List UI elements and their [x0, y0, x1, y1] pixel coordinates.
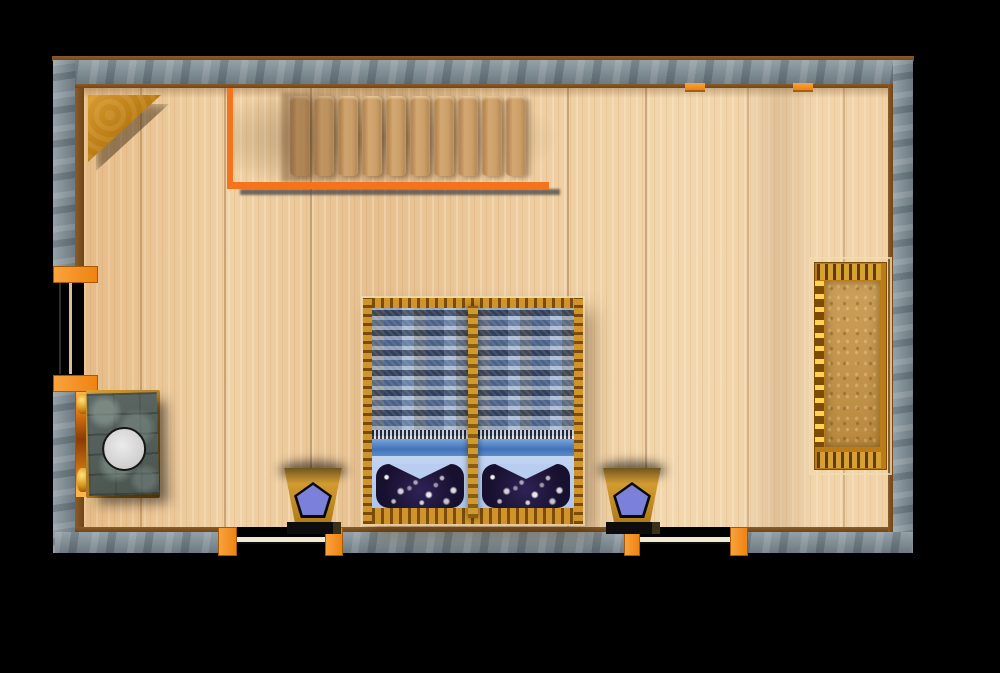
stair-tread: [458, 96, 478, 176]
bench[interactable]: [811, 259, 890, 473]
bed-frame-right: [574, 298, 583, 524]
bed-half-left: [372, 308, 468, 508]
table-slab: [87, 392, 160, 496]
blanket-fringe: [478, 430, 574, 439]
window-frame-line: [69, 283, 72, 374]
nightstand-left[interactable]: [281, 455, 345, 535]
plank-seam: [747, 88, 749, 527]
plate[interactable]: [102, 426, 147, 471]
bed-frame-middle-rail: [468, 306, 478, 518]
blanket-fringe: [372, 430, 468, 439]
pillow: [376, 464, 464, 508]
double-bed[interactable]: [363, 298, 583, 524]
wall-lamp-icon[interactable]: [793, 83, 813, 92]
wall-lamp-icon[interactable]: [685, 83, 705, 92]
right-wall: [893, 60, 913, 553]
nightstand-base: [606, 522, 660, 534]
folded-sheet-band: [478, 439, 574, 456]
bottom-wall-inner-trim: [75, 527, 888, 532]
stair-tread: [506, 96, 526, 176]
stair-tread: [434, 96, 454, 176]
stone-table[interactable]: [76, 390, 160, 498]
window-glass-line: [59, 283, 61, 374]
stair-railing-vertical[interactable]: [227, 88, 233, 189]
door-leaf[interactable]: [237, 537, 325, 544]
plank-seam: [224, 88, 226, 527]
staircase[interactable]: [227, 88, 560, 200]
stair-tread: [482, 96, 502, 176]
stair-tread: [362, 96, 382, 176]
pillow: [482, 464, 570, 508]
door-jamb: [218, 527, 237, 556]
stair-railing-horizontal[interactable]: [227, 182, 549, 189]
floorplan-canvas: [0, 0, 1000, 673]
stair-tread: [386, 96, 406, 176]
door-leaf[interactable]: [640, 537, 730, 544]
bench-cushion: [825, 281, 880, 447]
stair-tread: [410, 96, 430, 176]
left-wall-upper: [53, 60, 75, 266]
top-wall: [55, 60, 913, 84]
folded-sheet-band: [372, 439, 468, 456]
bed-half-right: [478, 308, 574, 508]
bottom-wall: [55, 532, 913, 553]
bench-bead-edge: [815, 281, 824, 447]
stair-fade-shadow: [282, 92, 352, 182]
door-jamb: [730, 527, 748, 556]
nightstand-base: [287, 522, 341, 534]
nightstand-right[interactable]: [600, 455, 664, 535]
plaid-blanket: [372, 308, 468, 436]
window-jamb: [53, 266, 98, 283]
window-opening: [50, 282, 84, 375]
bed-frame-left: [363, 298, 372, 524]
left-wall-lower: [53, 391, 75, 553]
bench-comb-bottom: [817, 452, 881, 468]
plaid-blanket: [478, 308, 574, 436]
window-left[interactable]: [50, 264, 100, 394]
bench-comb-top: [817, 264, 881, 280]
floor-shade-column: [744, 88, 814, 527]
railing-shadow: [240, 189, 560, 195]
